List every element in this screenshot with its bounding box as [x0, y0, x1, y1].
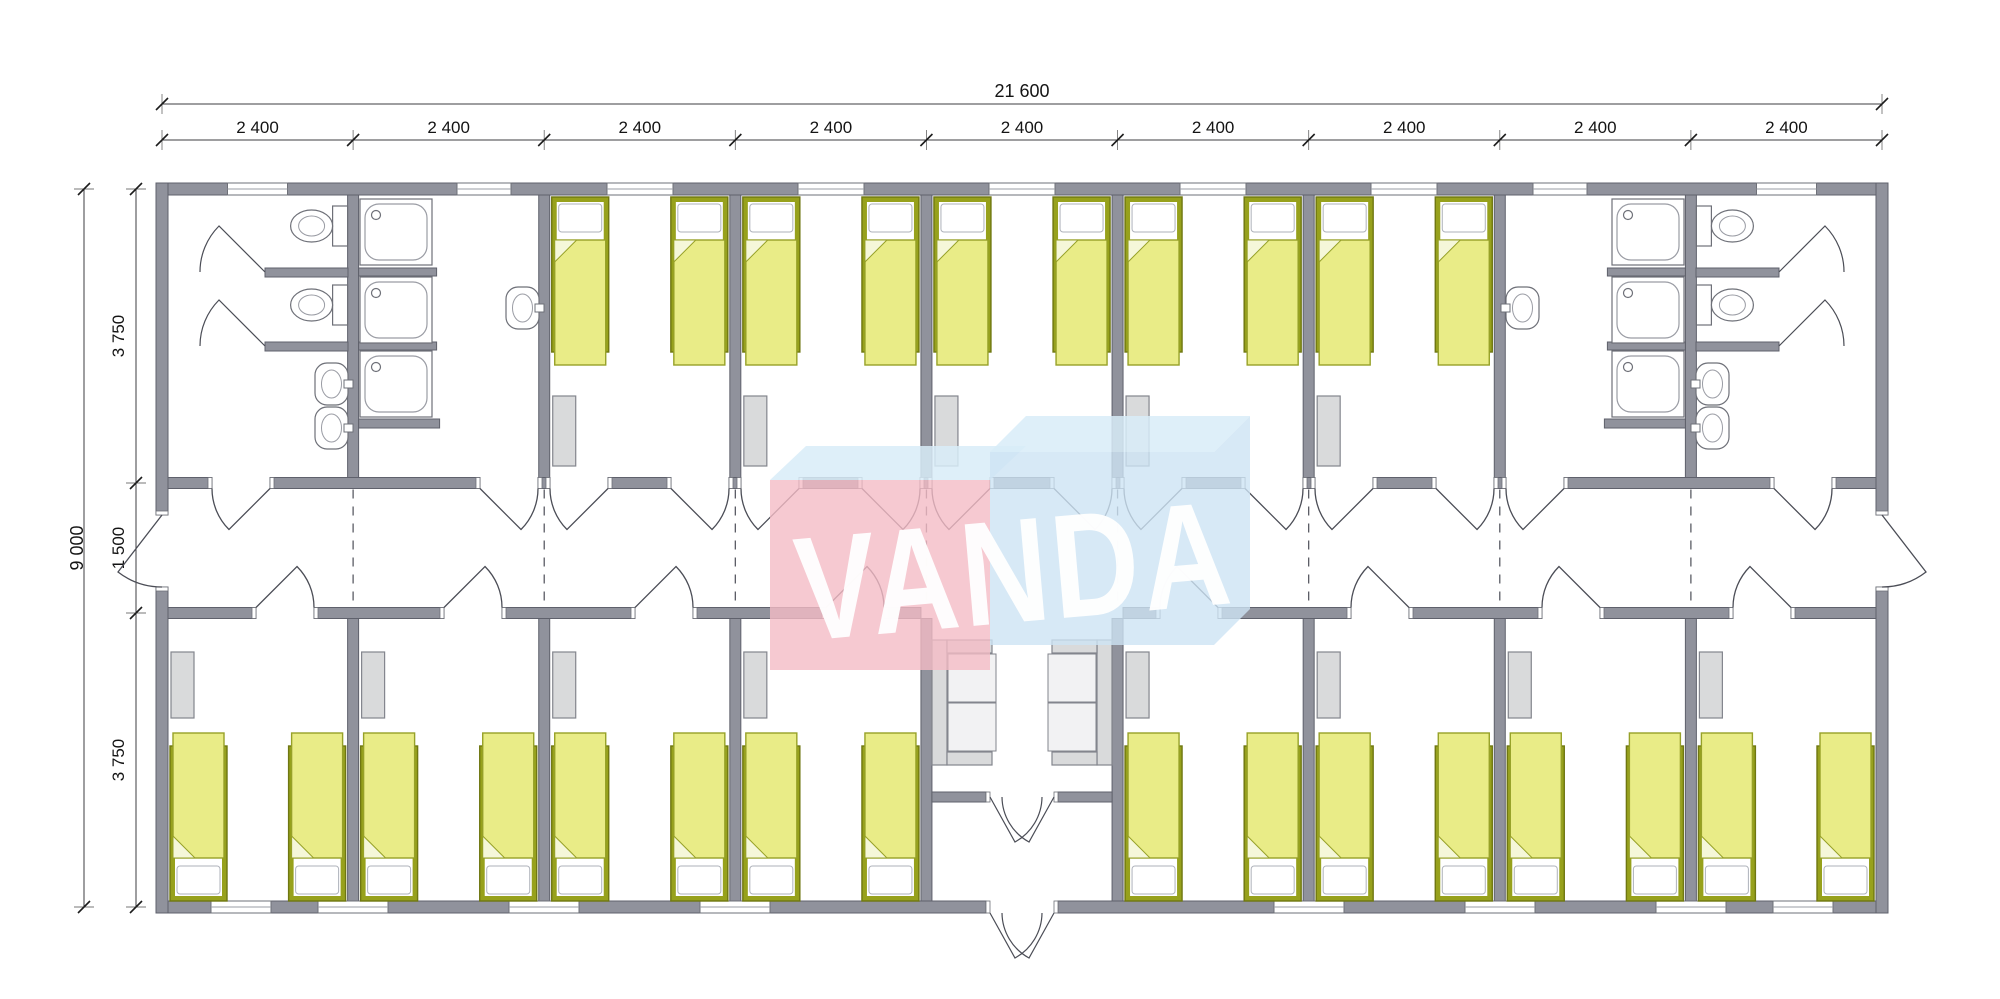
- corridor-wall-top: [1373, 478, 1436, 489]
- pillow: [1251, 204, 1294, 232]
- pillow: [941, 204, 984, 232]
- door-leaf-bottom-room: [1733, 566, 1791, 607]
- corridor-wall-bottom: [1600, 608, 1733, 619]
- pillow: [1442, 866, 1485, 894]
- pillow: [869, 204, 912, 232]
- door-jamb: [314, 608, 318, 619]
- pillow: [678, 204, 721, 232]
- blanket: [1247, 733, 1298, 858]
- washbasin-body: [1696, 363, 1729, 405]
- floor-plan-drawing: 2 4002 4002 4002 4002 4002 4002 4002 400…: [0, 0, 2000, 999]
- door-jamb: [476, 478, 480, 489]
- wardrobe: [553, 396, 576, 466]
- toilet-stall-door: [1779, 226, 1844, 272]
- door-jamb: [986, 901, 990, 913]
- bathroom-stub-wall: [1607, 268, 1685, 276]
- sofa-cushion: [1048, 654, 1096, 702]
- sofa-armrest: [947, 752, 992, 765]
- pillow: [869, 866, 912, 894]
- bed: [552, 733, 609, 901]
- blanket: [674, 733, 725, 858]
- door-jamb: [1432, 478, 1436, 489]
- door-jamb: [631, 608, 635, 619]
- corridor-wall-top: [1564, 478, 1774, 489]
- blanket: [1128, 733, 1179, 858]
- logo-box-blue-top-face: [990, 416, 1250, 452]
- toilet-stall-door: [200, 226, 265, 272]
- door-jamb: [270, 478, 274, 489]
- dimension-label: 2 400: [1765, 118, 1808, 137]
- washbasin: [1501, 287, 1539, 329]
- wardrobe: [1317, 652, 1340, 718]
- lobby-partition-wall: [932, 792, 986, 802]
- door-leaf-top-room: [212, 489, 270, 530]
- bed: [289, 733, 346, 901]
- pillow: [1132, 866, 1175, 894]
- pillow: [1060, 204, 1103, 232]
- door-jamb: [1054, 792, 1058, 802]
- shower-tray: [1612, 351, 1684, 417]
- blanket: [483, 733, 534, 858]
- washbasin-tap: [535, 304, 544, 312]
- pillow: [1633, 866, 1676, 894]
- washbasin-tap: [344, 424, 353, 432]
- shower-stall: [360, 199, 432, 265]
- door-jamb: [1502, 478, 1506, 489]
- shower-tray: [1612, 199, 1684, 265]
- pillow: [1323, 866, 1366, 894]
- door-leaf-top-room: [1774, 489, 1832, 530]
- dim-total-width-label: 21 600: [994, 81, 1049, 101]
- blanket: [1438, 240, 1489, 365]
- washbasin-tap: [1501, 304, 1510, 312]
- bathroom-stub-wall: [265, 268, 348, 277]
- wardrobe: [744, 652, 767, 718]
- wardrobe: [1317, 396, 1340, 466]
- corridor-wall-top: [270, 478, 480, 489]
- corridor-wall-bottom: [314, 608, 444, 619]
- divider-wall-bottom-row: [1303, 619, 1314, 902]
- dimension-label: 2 400: [1574, 118, 1617, 137]
- divider-wall-bottom-row: [730, 619, 741, 902]
- dimension-label: 2 400: [1192, 118, 1235, 137]
- pillow: [750, 866, 793, 894]
- wardrobe: [171, 652, 194, 718]
- pillow: [1514, 866, 1557, 894]
- pillow: [1705, 866, 1748, 894]
- blanket: [865, 240, 916, 365]
- toilet-stall-door: [200, 300, 265, 346]
- corridor-wall-bottom: [168, 608, 256, 619]
- blanket: [173, 733, 224, 858]
- pillow: [750, 204, 793, 232]
- pillow: [1251, 866, 1294, 894]
- door-jamb: [538, 478, 542, 489]
- door-jamb: [156, 511, 168, 515]
- blanket: [674, 240, 725, 365]
- door-leaf-top-room: [1315, 489, 1373, 530]
- toilet-stall-door: [1779, 300, 1844, 346]
- watermark: VANDA: [770, 416, 1250, 673]
- outer-wall-right: [1876, 183, 1888, 515]
- washbasin-tap: [1691, 380, 1700, 388]
- bed: [862, 733, 919, 901]
- bed: [743, 197, 800, 365]
- corridor-wall-bottom: [1791, 608, 1876, 619]
- washbasin-body: [315, 407, 348, 449]
- washbasin-body: [1696, 407, 1729, 449]
- blanket: [937, 240, 988, 365]
- pillow: [559, 204, 602, 232]
- blanket: [1128, 240, 1179, 365]
- toilet-bowl: [291, 289, 333, 321]
- door-jamb: [1494, 478, 1498, 489]
- door-leaf-bottom-room: [1542, 566, 1600, 607]
- dimension-label: 2 400: [1001, 118, 1044, 137]
- bed: [862, 197, 919, 365]
- bathroom-stub-wall: [265, 342, 348, 351]
- blanket: [1510, 733, 1561, 858]
- door-jamb: [1876, 511, 1888, 515]
- door-jamb: [1564, 478, 1568, 489]
- dim-total-height-label: 9 000: [67, 525, 87, 570]
- sanitary-fixtures: [291, 199, 1754, 449]
- blanket: [555, 733, 606, 858]
- pillow: [1323, 204, 1366, 232]
- divider-wall-top-row: [1494, 195, 1505, 478]
- bed: [1125, 733, 1182, 901]
- door-jamb: [1303, 478, 1307, 489]
- door-jamb: [502, 608, 506, 619]
- dimension-label: 2 400: [619, 118, 662, 137]
- shower-stall: [1612, 351, 1684, 417]
- wardrobe: [1699, 652, 1722, 718]
- toilet-bowl: [1711, 289, 1753, 321]
- door-jamb: [1791, 608, 1795, 619]
- washbasin-tap: [1691, 424, 1700, 432]
- entrance-door-leaf: [990, 913, 1042, 958]
- bed: [1125, 197, 1182, 365]
- pillow: [1442, 204, 1485, 232]
- door-jamb: [1729, 608, 1733, 619]
- pillow: [678, 866, 721, 894]
- door-jamb: [667, 478, 671, 489]
- door-jamb: [252, 608, 256, 619]
- sofa-cushion: [1048, 703, 1096, 751]
- door-leaf-top-room: [1245, 489, 1303, 530]
- bed: [1435, 197, 1492, 365]
- door-leaf-bottom-room: [256, 566, 314, 607]
- pillow: [177, 866, 220, 894]
- washbasin-body: [506, 287, 539, 329]
- blanket: [1319, 733, 1370, 858]
- door-jamb: [546, 478, 550, 489]
- divider-wall-bottom-row: [539, 619, 550, 902]
- wardrobe: [553, 652, 576, 718]
- toilet-tank: [1696, 285, 1711, 325]
- toilet-tank: [333, 206, 348, 246]
- bed: [1244, 733, 1301, 901]
- bed: [1626, 733, 1683, 901]
- dimension-label: 2 400: [427, 118, 470, 137]
- divider-wall-bottom-row: [1494, 619, 1505, 902]
- divider-wall-top-row: [730, 195, 741, 478]
- shower-stall: [1612, 277, 1684, 343]
- corridor-wall-top: [1832, 478, 1876, 489]
- door-jamb: [729, 478, 733, 489]
- blanket: [364, 733, 415, 858]
- blanket: [1247, 240, 1298, 365]
- shower-tray: [360, 199, 432, 265]
- bed: [1316, 197, 1373, 365]
- corridor-exit-door-right: [1882, 515, 1926, 587]
- bathroom-stub-wall: [1696, 268, 1779, 277]
- door-jamb: [693, 608, 697, 619]
- blanket: [1056, 240, 1107, 365]
- shower-tray: [360, 351, 432, 417]
- door-jamb: [1409, 608, 1413, 619]
- shower-tray: [360, 277, 432, 343]
- wardrobe: [744, 396, 767, 466]
- dimension-label: 2 400: [1383, 118, 1426, 137]
- sofa: [1048, 640, 1112, 765]
- door-leaf-top-room: [480, 489, 538, 530]
- bed: [671, 733, 728, 901]
- bed: [1817, 733, 1874, 901]
- pillow: [1132, 204, 1175, 232]
- divider-wall-top-row: [348, 195, 359, 478]
- door-leaf-top-room: [671, 489, 729, 530]
- blanket: [1820, 733, 1871, 858]
- logo-box-pink-top-face: [770, 446, 1026, 480]
- door-jamb: [1770, 478, 1774, 489]
- toilet-bowl: [1711, 210, 1753, 242]
- dimension-label: 3 750: [109, 315, 128, 358]
- divider-wall-bottom-row: [1112, 619, 1123, 902]
- washbasin-body: [315, 363, 348, 405]
- bed: [671, 197, 728, 365]
- bathroom-stub-wall: [1696, 342, 1779, 351]
- pillow: [368, 866, 411, 894]
- divider-wall-top-row: [539, 195, 550, 478]
- door-jamb: [440, 608, 444, 619]
- toilet: [291, 206, 348, 246]
- floor-plan-page: 2 4002 4002 4002 4002 4002 4002 4002 400…: [0, 0, 2000, 999]
- door-jamb: [1832, 478, 1836, 489]
- corridor-wall-bottom: [502, 608, 635, 619]
- bed: [1507, 733, 1564, 901]
- door-jamb: [1311, 478, 1315, 489]
- blanket: [746, 733, 797, 858]
- corridor-wall-bottom: [1409, 608, 1542, 619]
- corridor-wall-top: [608, 478, 671, 489]
- door-jamb: [1538, 608, 1542, 619]
- blanket: [555, 240, 606, 365]
- bathroom-stub-wall: [359, 268, 437, 276]
- corridor-wall-top: [168, 478, 212, 489]
- dimension-label: 2 400: [236, 118, 279, 137]
- bed: [934, 197, 991, 365]
- door-jamb: [1373, 478, 1377, 489]
- blanket: [1319, 240, 1370, 365]
- pillow: [487, 866, 530, 894]
- bathroom-stub-wall: [359, 419, 440, 428]
- bed: [1435, 733, 1492, 901]
- bed: [361, 733, 418, 901]
- bed: [1316, 733, 1373, 901]
- door-leaf-bottom-room: [635, 566, 693, 607]
- door-jamb: [986, 792, 990, 802]
- toilet: [1696, 285, 1753, 325]
- dimension-label: 3 750: [109, 739, 128, 782]
- shower-stall: [360, 277, 432, 343]
- bed: [1698, 733, 1755, 901]
- pillow: [296, 866, 339, 894]
- lobby-inner-door-leaf: [990, 797, 1042, 842]
- door-leaf-top-room: [1506, 489, 1564, 530]
- divider-wall-bottom-row: [1685, 619, 1696, 902]
- shower-tray: [1612, 277, 1684, 343]
- door-jamb: [737, 478, 741, 489]
- shower-stall: [1612, 199, 1684, 265]
- door-jamb: [1347, 608, 1351, 619]
- bed: [170, 733, 227, 901]
- blanket: [746, 240, 797, 365]
- bed: [1053, 197, 1110, 365]
- door-leaf-top-room: [550, 489, 608, 530]
- door-jamb: [208, 478, 212, 489]
- toilet-tank: [1696, 206, 1711, 246]
- divider-wall-top-row: [1303, 195, 1314, 478]
- bed: [480, 733, 537, 901]
- lobby-inner-door-leaf: [1002, 797, 1054, 842]
- washbasin-body: [1506, 287, 1539, 329]
- sofa-cushion: [948, 703, 996, 751]
- bed: [1244, 197, 1301, 365]
- divider-wall-top-row: [921, 195, 932, 478]
- wardrobe: [1508, 652, 1531, 718]
- door-leaf-bottom-room: [1351, 566, 1409, 607]
- door-leaf-bottom-room: [444, 566, 502, 607]
- blanket: [1438, 733, 1489, 858]
- wardrobe: [1126, 652, 1149, 718]
- toilet-bowl: [291, 210, 333, 242]
- divider-wall-bottom-row: [348, 619, 359, 902]
- sofa-armrest: [1052, 752, 1097, 765]
- door-jamb: [1054, 901, 1058, 913]
- outer-wall-right: [1876, 587, 1888, 913]
- pillow: [559, 866, 602, 894]
- sofa-back: [1097, 640, 1112, 765]
- door-leaf-top-room: [1436, 489, 1494, 530]
- blanket: [1701, 733, 1752, 858]
- outer-wall-left: [156, 183, 168, 515]
- bed: [743, 733, 800, 901]
- outer-wall-left: [156, 587, 168, 913]
- entrance-door-leaf: [1002, 913, 1054, 958]
- blanket: [1629, 733, 1680, 858]
- divider-wall-top-row: [1685, 195, 1696, 478]
- toilet-tank: [333, 285, 348, 325]
- door-jamb: [1600, 608, 1604, 619]
- bathroom-stub-wall: [1604, 419, 1685, 428]
- blanket: [865, 733, 916, 858]
- washbasin-tap: [344, 380, 353, 388]
- pillow: [1824, 866, 1867, 894]
- toilet: [291, 285, 348, 325]
- toilet: [1696, 206, 1753, 246]
- lobby-partition-wall: [1058, 792, 1112, 802]
- wardrobe: [362, 652, 385, 718]
- dimension-label: 2 400: [810, 118, 853, 137]
- blanket: [292, 733, 343, 858]
- door-jamb: [608, 478, 612, 489]
- shower-stall: [360, 351, 432, 417]
- bed: [552, 197, 609, 365]
